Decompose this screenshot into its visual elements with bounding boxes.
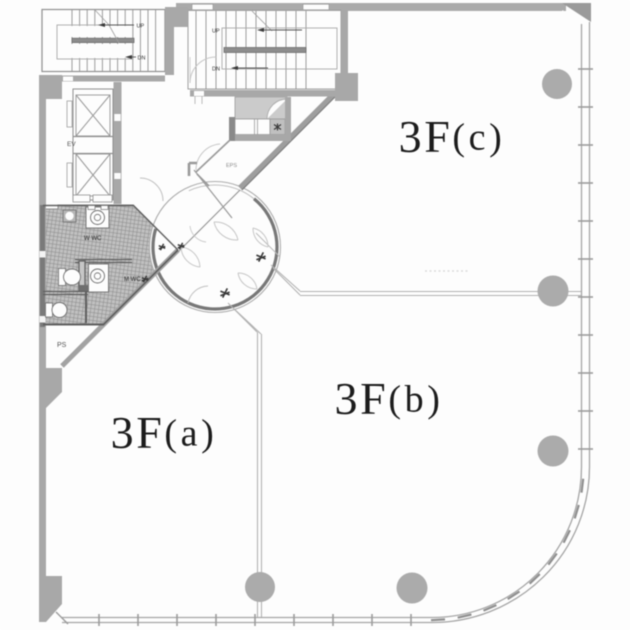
svg-text:UP: UP [137, 24, 145, 30]
svg-text:UP: UP [212, 29, 220, 35]
svg-text:M WC: M WC [124, 277, 141, 283]
svg-text:EPS: EPS [226, 163, 237, 169]
svg-text:PS: PS [57, 342, 67, 349]
svg-text:3F(a): 3F(a) [111, 407, 218, 458]
svg-text:DN: DN [212, 67, 220, 73]
svg-text:EV: EV [67, 141, 76, 148]
svg-text:3F(c): 3F(c) [399, 111, 506, 162]
svg-text:W WC: W WC [84, 236, 102, 242]
svg-text:3F(b): 3F(b) [335, 373, 444, 424]
svg-text:DN: DN [138, 56, 146, 62]
